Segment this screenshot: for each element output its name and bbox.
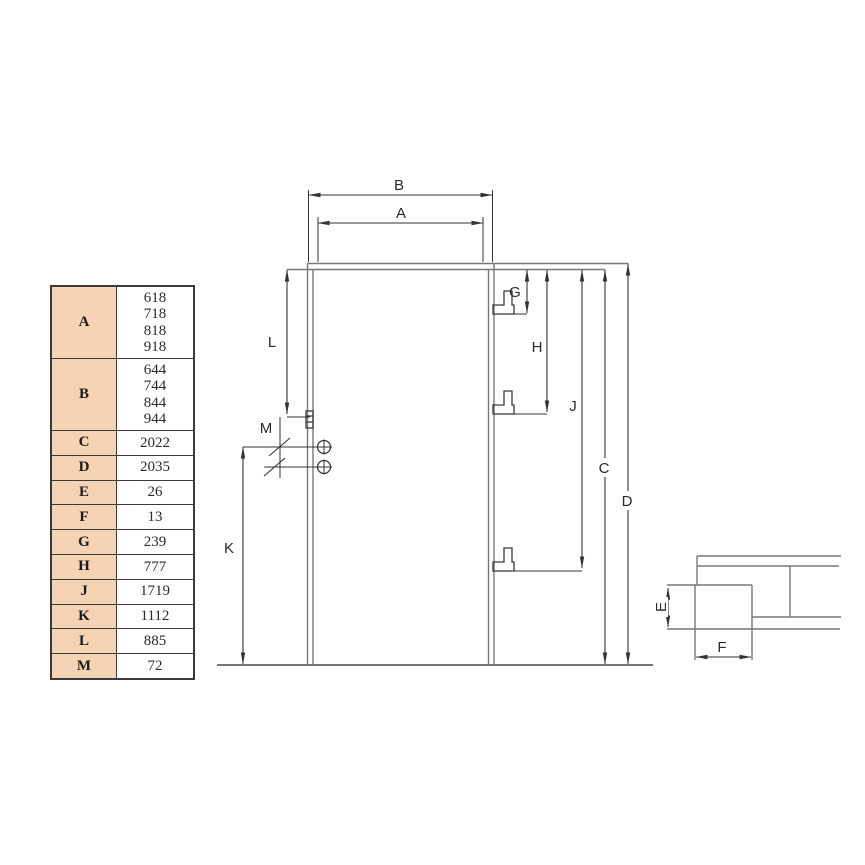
frame-section-detail: [667, 556, 841, 660]
door-dimension-sheet: A 618 718 818 918 B 644 744 844 944 C 20…: [0, 0, 865, 865]
dim-label-k: K: [224, 540, 234, 557]
dim-label-b: B: [394, 177, 404, 194]
hinge-icon: [493, 548, 514, 571]
hinge-icon: [493, 391, 514, 414]
door-frame-outline: [287, 263, 629, 665]
dim-label-c: C: [599, 460, 610, 477]
dim-label-l: L: [268, 334, 276, 351]
door-elevation-drawing: B A L M K G H J C D E F: [0, 0, 865, 865]
dim-label-e: E: [653, 602, 670, 612]
dim-label-m: M: [260, 420, 273, 437]
dim-label-f: F: [717, 639, 726, 656]
dim-label-h: H: [532, 339, 543, 356]
dim-label-a: A: [396, 205, 406, 222]
dim-label-d: D: [622, 493, 633, 510]
dim-label-j: J: [569, 398, 577, 415]
dimension-lines: [243, 190, 628, 664]
dim-label-g: G: [509, 284, 521, 301]
